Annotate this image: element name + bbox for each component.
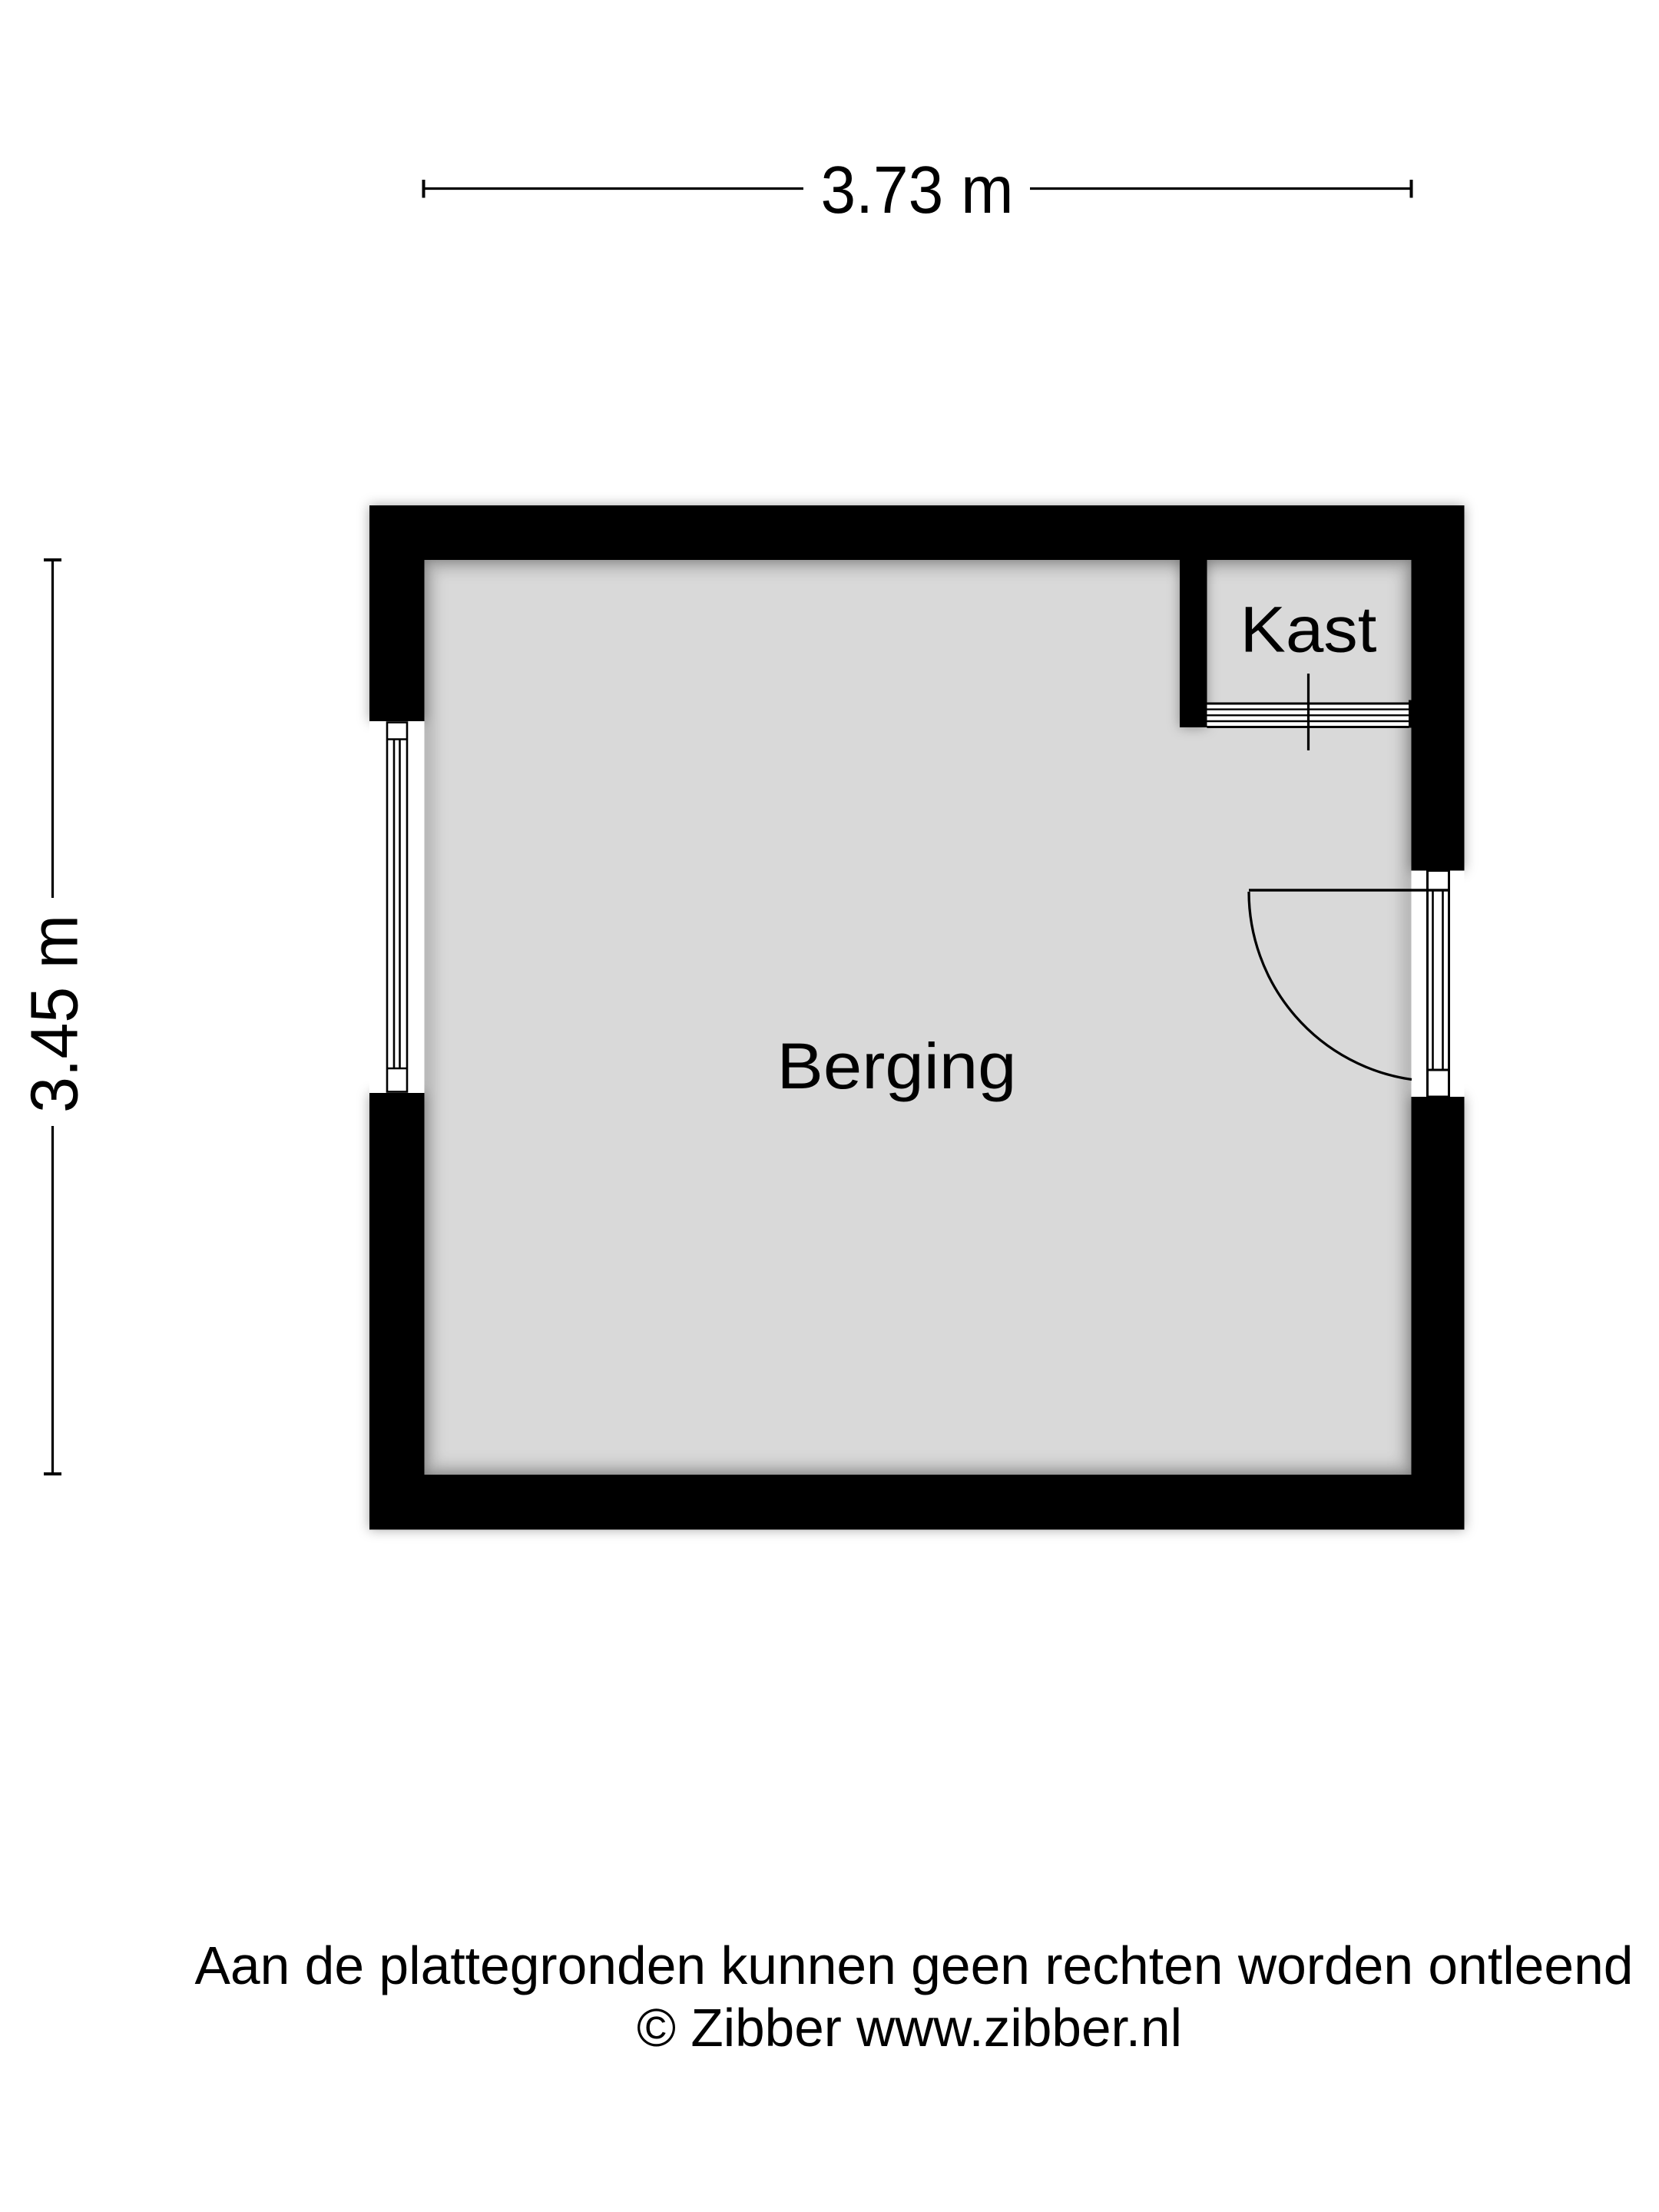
svg-text:Aan de plattegronden kunnen ge: Aan de plattegronden kunnen geen rechten… (195, 1936, 1634, 1995)
svg-text:Kast: Kast (1240, 594, 1377, 666)
svg-text:3.73 m: 3.73 m (821, 153, 1014, 227)
svg-text:© Zibber www.zibber.nl: © Zibber www.zibber.nl (637, 1998, 1182, 2058)
svg-text:3.45 m: 3.45 m (18, 915, 92, 1113)
svg-text:Berging: Berging (777, 1030, 1017, 1102)
